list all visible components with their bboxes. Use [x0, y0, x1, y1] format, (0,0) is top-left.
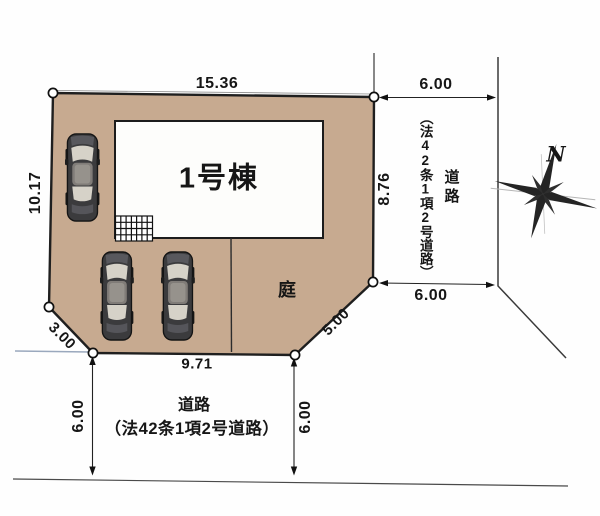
car-2	[100, 252, 134, 340]
right-road-law-label: （法42条1項2号道路）	[418, 111, 432, 279]
car-1	[65, 134, 100, 221]
right-road-name-label: 道路	[441, 169, 462, 207]
building-label: 1号棟	[179, 165, 259, 194]
dim-label-left: 10.17	[28, 172, 44, 215]
dim-label-top: 15.36	[196, 76, 239, 92]
dim-label-right-road-top: 6.00	[419, 77, 452, 93]
garden-label: 庭	[278, 281, 296, 299]
site-plan: 15.36 10.17 8.76 3.00 5.00 9.71 6.00 6.0…	[0, 0, 600, 516]
dim-label-bottom-road-left: 6.00	[71, 399, 87, 432]
right-road-edge-line	[498, 57, 566, 358]
boundary-extension-line	[15, 351, 90, 352]
porch-grid	[116, 216, 153, 241]
car-3	[161, 252, 195, 340]
dim-line-lower-road	[381, 283, 489, 285]
dim-label-right: 8.76	[377, 172, 393, 205]
dim-label-bottom: 9.71	[181, 357, 212, 372]
site-plan-drawing	[0, 0, 600, 516]
dim-label-bottom-road-right: 6.00	[298, 400, 314, 433]
north-label: N	[546, 144, 565, 165]
bottom-road-law-label: （法42条1項2号道路）	[105, 421, 280, 438]
bottom-road-name-label: 道路	[178, 398, 210, 414]
garden-divider-line	[231, 238, 232, 352]
dim-label-right-road-bottom: 6.00	[414, 288, 447, 304]
bottom-road-edge-line	[13, 479, 568, 486]
